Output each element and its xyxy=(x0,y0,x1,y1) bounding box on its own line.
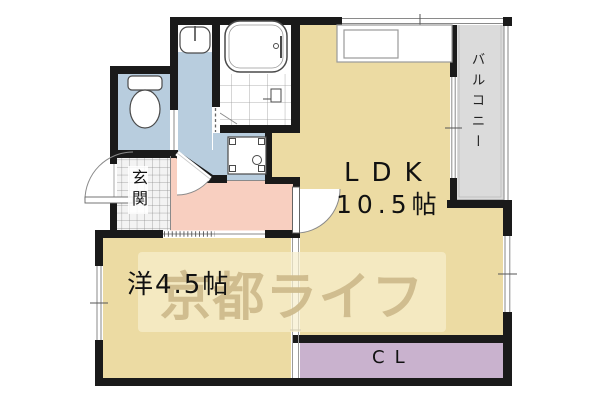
wall-bottom xyxy=(95,378,512,386)
balcony-label: バルコニー xyxy=(469,52,483,155)
ldk-label: LDK xyxy=(344,160,435,186)
floor-plan-drawing xyxy=(0,0,600,400)
wall-bath-right xyxy=(291,17,300,133)
wall-toilet-right xyxy=(170,74,178,110)
toilet-tank xyxy=(128,76,162,90)
western-room-label: 洋4.5帖 xyxy=(127,272,230,298)
entrance-label: 玄関 xyxy=(128,166,148,214)
wall-toilet-left xyxy=(110,66,118,158)
wall-washroom-left xyxy=(170,17,178,74)
shower-fixture xyxy=(271,89,281,102)
ldk-door-leaf xyxy=(293,187,300,233)
wall-top-right-corner xyxy=(503,17,512,26)
wall-entry-post xyxy=(110,200,117,230)
wall-bath-bottom xyxy=(213,125,300,133)
ldk-kitchen-nook xyxy=(272,133,300,177)
bathtub xyxy=(225,21,287,72)
closet-label: CL xyxy=(372,349,415,367)
wall-western-top-left xyxy=(95,230,163,238)
wall-closet-top xyxy=(293,335,512,343)
wall-ldk-right-lower xyxy=(450,178,457,208)
entrance-door-leaf xyxy=(85,197,133,203)
wall-ldk-door-jamb xyxy=(293,177,300,187)
toilet-bowl xyxy=(130,90,160,128)
floor-plan: 京都ライフ LDK 10.5帖 洋4.5帖 CL 玄関 バルコニー xyxy=(0,0,600,400)
wall-bath-left xyxy=(212,17,220,107)
kitchen-sink xyxy=(344,30,398,58)
ldk-size-label: 10.5帖 xyxy=(336,192,442,217)
wall-toilet-top xyxy=(110,66,178,74)
washing-machine-pan xyxy=(228,137,266,174)
